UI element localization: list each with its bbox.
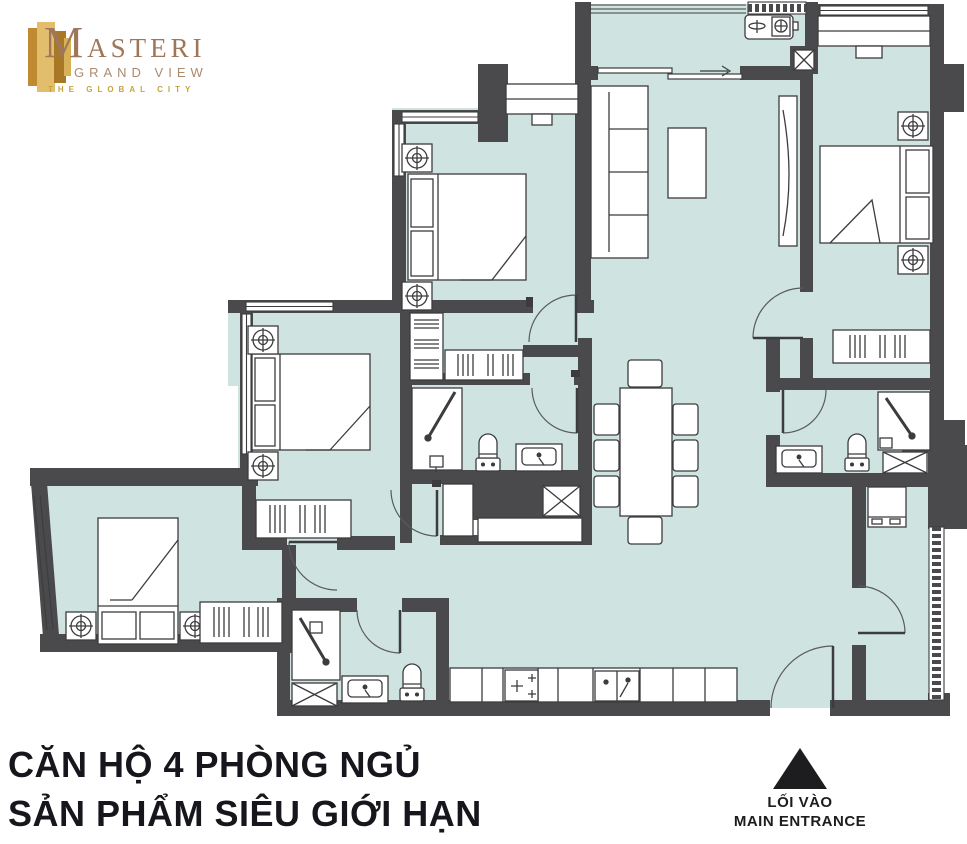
kitchen-sink xyxy=(595,671,639,701)
wardrobe xyxy=(200,602,282,643)
brand-tagline: THE GLOBAL CITY xyxy=(44,85,254,94)
stove xyxy=(505,670,538,701)
caption: CĂN HỘ 4 PHÒNG NGỦ SẢN PHẨM SIÊU GIỚI HẠ… xyxy=(8,740,482,838)
brand-name: MASTERI xyxy=(44,28,254,63)
entrance-marker: LỐI VÀO MAIN ENTRANCE xyxy=(700,748,900,830)
wardrobe xyxy=(256,500,351,538)
entrance-label-vi: LỐI VÀO xyxy=(700,794,900,811)
tv-console xyxy=(779,96,797,246)
ac-units xyxy=(745,15,798,39)
brand-logo: MASTERI GRAND VIEW THE GLOBAL CITY xyxy=(28,20,258,110)
caption-line-2: SẢN PHẨM SIÊU GIỚI HẠN xyxy=(8,789,482,838)
entrance-arrow-icon xyxy=(773,748,827,789)
entrance-label-en: MAIN ENTRANCE xyxy=(700,813,900,830)
brand-initial: M xyxy=(44,18,87,67)
brand-rest: ASTERI xyxy=(87,33,206,63)
brand-subtitle: GRAND VIEW xyxy=(44,65,254,80)
floor-plan xyxy=(0,0,967,844)
coffee-table xyxy=(668,128,706,198)
caption-line-1: CĂN HỘ 4 PHÒNG NGỦ xyxy=(8,740,482,789)
floorplan-poster: MASTERI GRAND VIEW THE GLOBAL CITY CĂN H… xyxy=(0,0,967,844)
dining-table xyxy=(620,388,672,516)
fridge xyxy=(868,487,906,527)
